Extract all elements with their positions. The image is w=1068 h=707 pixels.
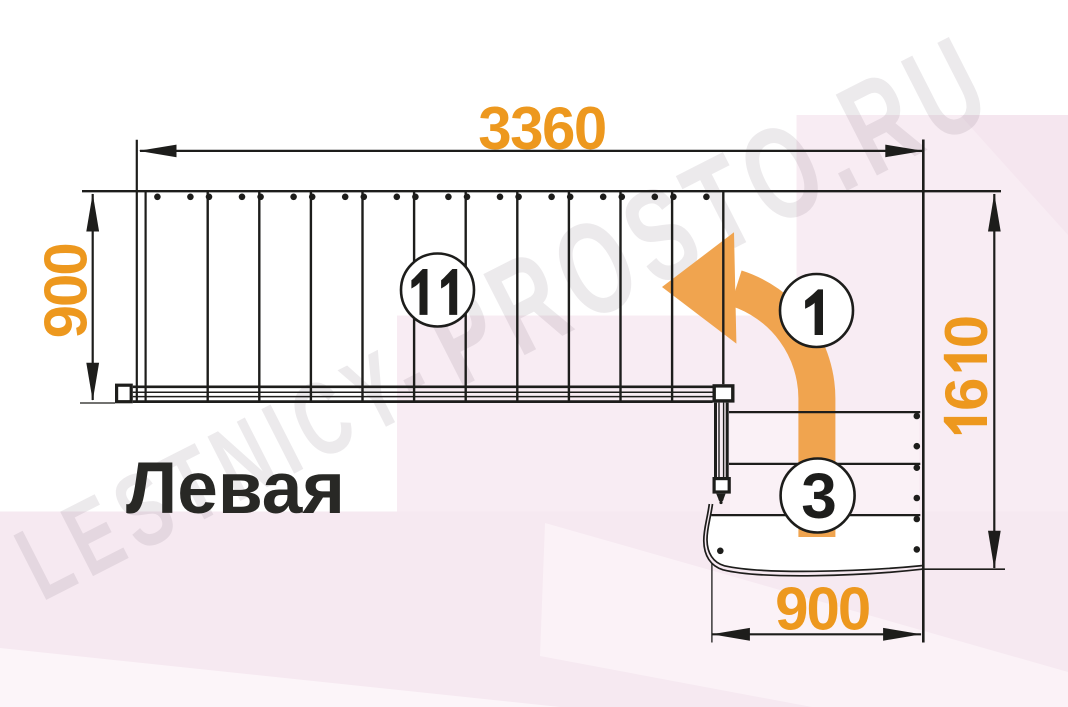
svg-text:0: 0 [933, 315, 1000, 348]
svg-text:3: 3 [801, 460, 837, 532]
svg-text:900: 900 [33, 244, 100, 338]
svg-text:6: 6 [933, 378, 1000, 411]
svg-text:900: 900 [775, 576, 869, 643]
svg-text:3360: 3360 [478, 95, 605, 162]
svg-text:Левая: Левая [126, 448, 345, 529]
